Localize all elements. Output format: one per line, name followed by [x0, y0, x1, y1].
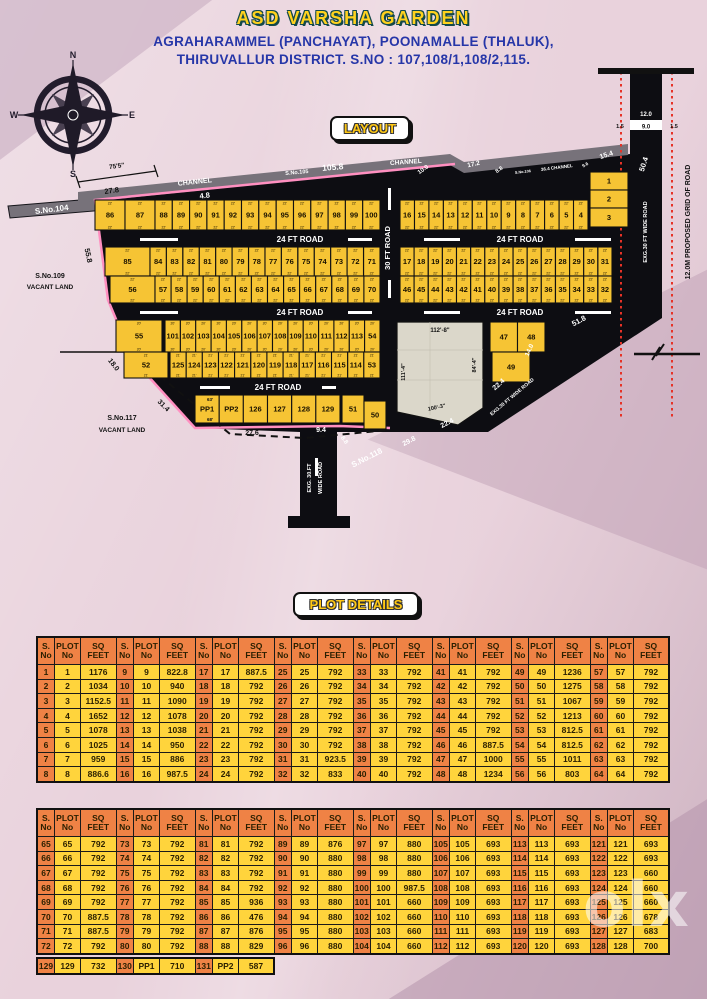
plot-dim: 20' [309, 347, 314, 351]
plot-number: 94 [263, 211, 272, 220]
table-cell: 123 [590, 866, 608, 881]
plot-dim: 22' [560, 271, 565, 275]
table-cell: 693 [555, 866, 591, 881]
plot-number: 9 [506, 211, 510, 220]
table-cell: 76 [116, 880, 134, 895]
table-cell: 55 [511, 752, 529, 767]
plot-dim: 22' [304, 271, 309, 275]
table-cell: 693 [555, 939, 591, 954]
table-header-cell: SQFEET [476, 637, 512, 665]
table-cell: 693 [476, 909, 512, 924]
plot-dim: 22' [574, 298, 579, 302]
table-cell: 32 [292, 767, 318, 782]
plot-dim: 22' [338, 298, 343, 302]
table-cell: 1236 [555, 665, 591, 680]
plot-dim: 21' [257, 353, 262, 357]
table-cell: 20 [195, 708, 213, 723]
plot-dim: 21' [224, 353, 229, 357]
table-cell: 23 [213, 752, 239, 767]
table-cell: 28 [274, 708, 292, 723]
plot-dim: 22' [257, 298, 262, 302]
table-cell: 17 [195, 665, 213, 680]
plot-number: 36 [544, 285, 552, 294]
plot-dim: 22' [177, 277, 182, 281]
map-label: 24 FT ROAD [277, 308, 324, 317]
table-cell: 12 [134, 708, 160, 723]
plot-number: 63 [255, 285, 263, 294]
plot-dim: 22' [354, 298, 359, 302]
table-cell: 77 [134, 895, 160, 910]
table-cell: 57 [590, 665, 608, 680]
plot-dim: 22' [463, 201, 468, 205]
table-cell: 792 [239, 837, 275, 852]
plot-dim: 22' [338, 277, 343, 281]
plot-dim: 22' [189, 271, 194, 275]
table-cell: 97 [353, 837, 371, 852]
table-cell: 99 [353, 866, 371, 881]
table-header-cell: SQFEET [397, 809, 433, 837]
table-header-cell: PLOTNo [529, 809, 555, 837]
table-cell: 660 [397, 939, 433, 954]
table-cell: 79 [134, 924, 160, 939]
table-cell: 792 [318, 708, 354, 723]
table-cell: 6 [55, 737, 81, 752]
table-cell: 78 [116, 909, 134, 924]
table-cell: 98 [371, 851, 397, 866]
map-label: S.No.118 [350, 446, 384, 469]
plot-number: 61 [223, 285, 231, 294]
table-cell: 812.5 [555, 737, 591, 752]
plot-number: 81 [203, 257, 211, 266]
table-cell: 35 [353, 694, 371, 709]
table-cell: 792 [634, 723, 670, 738]
table-cell: 57 [608, 665, 634, 680]
table-cell: 803 [555, 767, 591, 782]
table-cell: 116 [511, 880, 529, 895]
table-cell: 11 [116, 694, 134, 709]
table-cell: 1090 [160, 694, 196, 709]
map-label: EXG. 30.FT [307, 463, 313, 493]
plot-number: 35 [558, 285, 566, 294]
plot-number: 100 [365, 211, 378, 220]
plot-dim: 22' [492, 201, 497, 205]
plot-dim: 22' [535, 201, 540, 205]
plot-dim: 21' [370, 373, 375, 377]
table-cell: 122 [608, 851, 634, 866]
plot-number: 78 [253, 257, 261, 266]
table-cell: 32 [274, 767, 292, 782]
plot-dim: 22' [320, 248, 325, 252]
plot-dim: 22' [521, 225, 526, 229]
table-cell: 61 [590, 723, 608, 738]
plot-dim: 22' [177, 298, 182, 302]
plot-dim: 20' [355, 347, 360, 351]
table-cell: 792 [476, 694, 512, 709]
table-cell: 792 [634, 752, 670, 767]
table-cell: 62 [590, 737, 608, 752]
table-cell: 48 [432, 767, 450, 782]
plot-number: 10 [490, 211, 498, 220]
table-cell: 1152.5 [81, 694, 117, 709]
table-cell: 12 [116, 708, 134, 723]
plot-dim: 22' [532, 248, 537, 252]
plot-number: PP2 [224, 405, 238, 414]
table-cell: 127 [590, 924, 608, 939]
plot-dim: 22' [125, 248, 130, 252]
subtitle-line1: AGRAHARAMMEL (PANCHAYAT), POONAMALLE (TH… [0, 34, 707, 49]
table-cell: 106 [450, 851, 476, 866]
plot-dim: 22' [589, 271, 594, 275]
table-cell: 83 [195, 866, 213, 881]
plot-number: 121 [236, 361, 249, 370]
table-cell: 128 [608, 939, 634, 954]
plot-dim: 22' [354, 277, 359, 281]
plot-dim: 22' [504, 271, 509, 275]
table-cell: 65 [37, 837, 55, 852]
table-cell: 33 [371, 665, 397, 680]
table-cell: 109 [432, 895, 450, 910]
plot-dim: 22' [283, 201, 288, 205]
table-cell: 108 [450, 880, 476, 895]
table-cell: 1011 [555, 752, 591, 767]
table-cell: 100 [353, 880, 371, 895]
table-cell: 126 [608, 909, 634, 924]
plot-dim: 20' [370, 347, 375, 351]
plot-dim: 22' [546, 271, 551, 275]
table-cell: 792 [397, 752, 433, 767]
table-cell: 29 [274, 723, 292, 738]
map-label: 27.6 [245, 430, 259, 437]
table-cell: 732 [81, 958, 117, 974]
plot-number: 55 [135, 332, 143, 341]
compass-e: E [129, 110, 135, 120]
plot-dim: 22' [490, 248, 495, 252]
plot-dim: 22' [461, 277, 466, 281]
plot-dim: 22' [108, 225, 113, 229]
table-cell: 125 [590, 895, 608, 910]
map-label: 63' [207, 397, 213, 402]
table-cell: 104 [353, 939, 371, 954]
table-cell: 880 [318, 909, 354, 924]
table-cell: 88 [213, 939, 239, 954]
plot-dim: 22' [271, 271, 276, 275]
table-cell: 833 [318, 767, 354, 782]
plot-dim: 22' [492, 225, 497, 229]
plot-dim: 22' [172, 248, 177, 252]
table-cell: 52 [529, 708, 555, 723]
table-cell: 792 [160, 924, 196, 939]
plot-dim: 22' [532, 271, 537, 275]
table-cell: 80 [134, 939, 160, 954]
table-cell: 101 [353, 895, 371, 910]
plot-dim: 22' [447, 271, 452, 275]
table-cell: 127 [608, 924, 634, 939]
table-cell: 106 [432, 851, 450, 866]
map-label: 1.5 [616, 124, 624, 130]
plot-dim: 22' [550, 201, 555, 205]
table-cell: 91 [292, 866, 318, 881]
plot-dim: 22' [419, 298, 424, 302]
table-cell: 24 [195, 767, 213, 782]
table-cell: 121 [590, 837, 608, 852]
table-cell: 52 [511, 708, 529, 723]
plot-number: 67 [320, 285, 328, 294]
table-cell: 792 [81, 939, 117, 954]
plot-number: 103 [197, 332, 209, 341]
table-cell: 35 [371, 694, 397, 709]
plot-dim: 22' [574, 277, 579, 281]
plot-dim: 22' [546, 298, 551, 302]
plot-number: 129 [322, 405, 335, 414]
table-cell: 693 [555, 837, 591, 852]
plot-dim: 22' [560, 248, 565, 252]
compass-w: W [10, 110, 19, 120]
table-header-cell: SQFEET [397, 637, 433, 665]
table-header-cell: SQFEET [81, 809, 117, 837]
table-header-cell: S.No [511, 637, 529, 665]
table-cell: 887.5 [476, 737, 512, 752]
table-cell: 116 [529, 880, 555, 895]
plot-dim: 22' [433, 277, 438, 281]
table-cell: 18 [195, 679, 213, 694]
table-cell: 792 [397, 665, 433, 680]
plot-dim: 22' [257, 277, 262, 281]
map-label: VACANT LAND [99, 427, 146, 434]
map-label: 24 FT ROAD [497, 308, 544, 317]
plot-dim: 22' [506, 201, 511, 205]
table-cell: 34 [371, 679, 397, 694]
plot-dim: 21' [144, 353, 149, 357]
map-label: 29.8 [402, 435, 417, 447]
table-header-cell: S.No [353, 809, 371, 837]
table-cell: 46 [432, 737, 450, 752]
table-cell: 80 [116, 939, 134, 954]
plot-dim: 21' [337, 353, 342, 357]
plot-dim: 22' [300, 201, 305, 205]
table-cell: 43 [432, 694, 450, 709]
table-header-cell: SQFEET [634, 637, 670, 665]
table-cell: 61 [608, 723, 634, 738]
map-label: 31.4 [156, 399, 171, 414]
plot-dim: 20' [186, 321, 191, 325]
map-label: 4.8 [199, 190, 210, 200]
plot-number: 26 [530, 257, 538, 266]
table-cell: 121 [608, 837, 634, 852]
plot-number: 22 [474, 257, 482, 266]
table-cell: 43 [450, 694, 476, 709]
table-header-cell: SQFEET [634, 809, 670, 837]
table-cell: 34 [353, 679, 371, 694]
plot-number: 128 [298, 405, 311, 414]
plot-dim: 22' [477, 201, 482, 205]
table-cell: 792 [634, 694, 670, 709]
table-cell: 68 [37, 880, 55, 895]
plot-number: 7 [535, 211, 539, 220]
table-header-cell: S.No [274, 809, 292, 837]
table-cell: 1038 [160, 723, 196, 738]
table-header-cell: PLOTNo [292, 637, 318, 665]
plot-dim: 22' [225, 298, 230, 302]
plot-dim: 20' [201, 347, 206, 351]
plot-dim: 22' [405, 271, 410, 275]
plot-dim: 22' [532, 298, 537, 302]
table-cell: 77 [116, 895, 134, 910]
table-cell: 1275 [555, 679, 591, 694]
plot-dim: 22' [179, 201, 184, 205]
table-cell: 82 [213, 851, 239, 866]
table-cell: 72 [55, 939, 81, 954]
plot-dim: 22' [265, 201, 270, 205]
plot-dim: 22' [490, 298, 495, 302]
table-cell: 49 [511, 665, 529, 680]
table-cell: 940 [160, 679, 196, 694]
plot-dim: 22' [370, 277, 375, 281]
plot-dim: 22' [405, 248, 410, 252]
table-cell: 104 [371, 939, 397, 954]
plot-dim: 22' [213, 201, 218, 205]
plot-number: 58 [175, 285, 183, 294]
plot-dim: 20' [324, 347, 329, 351]
plot-number: 65 [287, 285, 295, 294]
plot-dim: 22' [205, 271, 210, 275]
table-cell: 47 [450, 752, 476, 767]
plot-number: 119 [269, 361, 281, 370]
table-cell: 100 [371, 880, 397, 895]
plot-number: 40 [488, 285, 496, 294]
table-cell: 24 [213, 767, 239, 782]
table-cell: 70 [55, 909, 81, 924]
table-cell: 792 [239, 708, 275, 723]
plot-dim: 22' [603, 248, 608, 252]
table-cell: 65 [55, 837, 81, 852]
table-cell: 14 [116, 737, 134, 752]
table-cell: PP1 [134, 958, 160, 974]
plot-dim: 22' [419, 225, 424, 229]
plot-number: 42 [459, 285, 467, 294]
table-header-cell: PLOTNo [134, 637, 160, 665]
plot-dim: 22' [213, 225, 218, 229]
table-cell: 1 [55, 665, 81, 680]
table-cell: 660 [634, 895, 670, 910]
plot-dim: 20' [355, 321, 360, 325]
table-cell: 107 [450, 866, 476, 881]
table-cell: 78 [134, 909, 160, 924]
plot-dim: 22' [238, 271, 243, 275]
plot-dim: 20' [370, 321, 375, 325]
table-cell: 117 [511, 895, 529, 910]
plot-dim: 22' [475, 248, 480, 252]
table-cell: 1078 [160, 708, 196, 723]
map-label: VACANT LAND [27, 284, 74, 291]
plot-dim: 22' [518, 277, 523, 281]
map-label: 9.0 [642, 125, 651, 131]
table-header-cell: PLOTNo [450, 809, 476, 837]
plot-dim: 22' [433, 248, 438, 252]
plot-number: 31 [601, 257, 609, 266]
table-cell: 48 [450, 767, 476, 782]
table-header-cell: PLOTNo [55, 637, 81, 665]
table-cell: 887.5 [81, 924, 117, 939]
table-cell: 792 [160, 866, 196, 881]
table-cell: 42 [432, 679, 450, 694]
map-label: 24 FT ROAD [497, 235, 544, 244]
plot-dim: 22' [447, 277, 452, 281]
table-cell: 693 [555, 909, 591, 924]
plot-number: 28 [558, 257, 566, 266]
plot-number: 23 [488, 257, 496, 266]
table-cell: 887.5 [239, 665, 275, 680]
table-cell: 987.5 [397, 880, 433, 895]
plot-number: 57 [159, 285, 167, 294]
plot-dim: 21' [240, 353, 245, 357]
plot-dim: 22' [161, 277, 166, 281]
plot-number: 19 [431, 257, 439, 266]
table-cell: 792 [239, 723, 275, 738]
plot-dim: 21' [337, 373, 342, 377]
plot-number: 123 [204, 361, 217, 370]
plot-dim: 20' [324, 321, 329, 325]
plot-dim: 22' [370, 298, 375, 302]
table-cell: 109 [450, 895, 476, 910]
plot-dim: 22' [322, 277, 327, 281]
table-cell: 10 [116, 679, 134, 694]
table-cell: 792 [397, 767, 433, 782]
table-cell: 54 [511, 737, 529, 752]
table-cell: 71 [37, 924, 55, 939]
table-cell: 95 [292, 924, 318, 939]
plot-dim: 22' [475, 277, 480, 281]
table-header-cell: SQFEET [239, 809, 275, 837]
table-cell: 126 [590, 909, 608, 924]
plot-dim: 22' [447, 248, 452, 252]
table-cell: 38 [353, 737, 371, 752]
table-header-cell: PLOTNo [213, 809, 239, 837]
plot-dim: 20' [216, 347, 221, 351]
table-cell: 8 [55, 767, 81, 782]
plot-dim: 22' [138, 225, 143, 229]
break-symbol [634, 344, 700, 360]
table-cell: 71 [55, 924, 81, 939]
plot-dim: 22' [317, 225, 322, 229]
plot-dim: 22' [334, 225, 339, 229]
table-cell: 110 [450, 909, 476, 924]
plot-dim: 22' [179, 225, 184, 229]
table-cell: 76 [134, 880, 160, 895]
plot-dim: 20' [170, 321, 175, 325]
plot-number: 49 [507, 363, 515, 372]
plot-dim: 22' [550, 225, 555, 229]
plot-dim: 21' [240, 373, 245, 377]
table-cell: 792 [634, 665, 670, 680]
table-cell: 60 [608, 708, 634, 723]
plot-number: 99 [350, 211, 358, 220]
table-cell: 36 [353, 708, 371, 723]
map-label: 112'-8" [430, 328, 449, 334]
plot-number: 11 [476, 211, 484, 220]
plot-dim: 22' [434, 201, 439, 205]
plot-dim: 22' [196, 225, 201, 229]
plot-number: 86 [106, 211, 114, 220]
table-cell: 1025 [81, 737, 117, 752]
table-cell: 26 [292, 679, 318, 694]
plot-dim: 22' [560, 277, 565, 281]
plot-dim: 22' [448, 225, 453, 229]
table-cell: 1 [37, 665, 55, 680]
plot-number: 5 [564, 211, 568, 220]
table-cell: 58 [608, 679, 634, 694]
table-cell: 103 [353, 924, 371, 939]
plot-number: 8 [521, 211, 525, 220]
